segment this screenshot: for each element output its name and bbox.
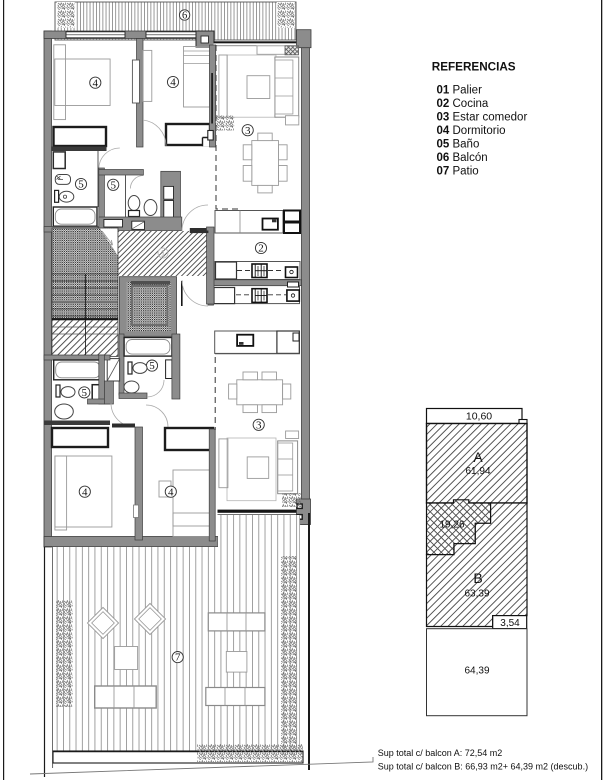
svg-text:64,39: 64,39 xyxy=(464,666,489,677)
svg-text:2: 2 xyxy=(258,243,264,255)
svg-text:19,26: 19,26 xyxy=(439,520,464,531)
svg-text:04 Dormitorio: 04 Dormitorio xyxy=(437,125,506,137)
svg-text:01 Palier: 01 Palier xyxy=(437,85,483,97)
svg-text:4: 4 xyxy=(82,486,88,498)
svg-text:7: 7 xyxy=(175,652,181,664)
svg-text:5: 5 xyxy=(82,387,88,399)
svg-text:03 Estar comedor: 03 Estar comedor xyxy=(437,112,528,124)
svg-text:A: A xyxy=(473,449,483,465)
svg-text:Sup total c/ balcon A: 72,54: Sup total c/ balcon A: 72,54 m2 xyxy=(378,748,503,758)
svg-text:1: 1 xyxy=(160,248,165,258)
svg-text:4: 4 xyxy=(168,486,174,498)
svg-text:5: 5 xyxy=(110,179,116,191)
svg-text:4: 4 xyxy=(170,77,176,89)
svg-text:B: B xyxy=(473,570,482,586)
svg-text:06 Balcón: 06 Balcón xyxy=(437,152,488,164)
svg-text:63,39: 63,39 xyxy=(464,589,489,600)
svg-text:02 Cocina: 02 Cocina xyxy=(437,98,489,110)
svg-text:5: 5 xyxy=(149,360,155,372)
svg-text:REFERENCIAS: REFERENCIAS xyxy=(432,61,516,74)
svg-text:07 Patio: 07 Patio xyxy=(437,166,479,178)
svg-text:3: 3 xyxy=(256,419,262,431)
svg-text:05 Baño: 05 Baño xyxy=(437,139,480,151)
svg-text:10,60: 10,60 xyxy=(466,411,492,423)
svg-text:6: 6 xyxy=(182,10,187,21)
svg-text:4: 4 xyxy=(93,77,99,89)
svg-text:5: 5 xyxy=(78,179,84,191)
svg-text:Sup total c/ balcon B: 66,93: Sup total c/ balcon B: 66,93 m2+ 64,39 m… xyxy=(378,762,588,772)
svg-text:61,94: 61,94 xyxy=(465,466,490,477)
svg-text:3: 3 xyxy=(245,125,251,137)
svg-text:3,54: 3,54 xyxy=(500,618,520,629)
